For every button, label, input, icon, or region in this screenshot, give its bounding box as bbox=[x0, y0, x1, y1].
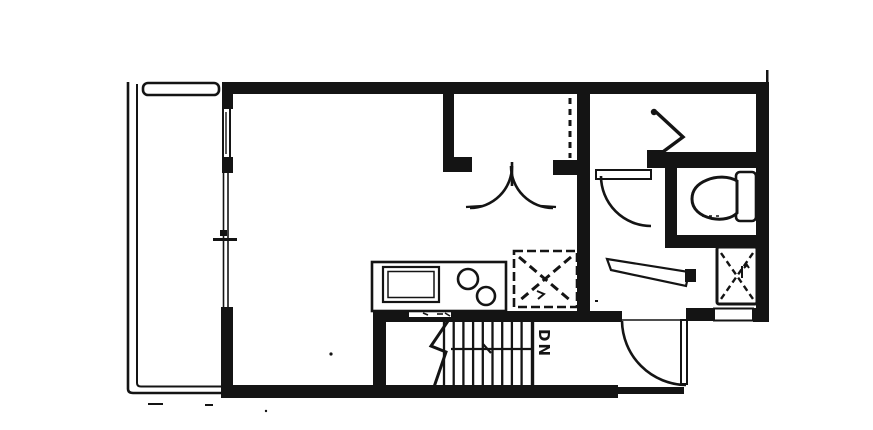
entry-door-leaf-angled bbox=[607, 259, 689, 286]
balcony-inner-rail bbox=[137, 84, 224, 387]
wall-bottom bbox=[222, 385, 618, 398]
wall-toilet-top bbox=[660, 152, 757, 168]
closet-door-right-swing-arc bbox=[511, 166, 553, 208]
washer-x-diag-2 bbox=[721, 253, 753, 299]
stair-treads bbox=[444, 321, 522, 385]
toilet-door-swing-arc bbox=[601, 176, 651, 226]
entry-door-hinge-blob bbox=[685, 269, 696, 282]
wall-hall-vertical bbox=[577, 92, 590, 318]
dishwasher-center-squiggle bbox=[537, 291, 544, 299]
upper-right-room-symbol bbox=[651, 109, 683, 157]
left-wall-window bbox=[223, 108, 230, 158]
wall-left-sill bbox=[222, 157, 233, 173]
entry-threshold-band bbox=[617, 387, 684, 394]
washer-square bbox=[717, 247, 757, 304]
slider-latch-blob bbox=[220, 230, 227, 236]
speck-dash-1 bbox=[148, 403, 163, 405]
floor-plan-drawing: DN bbox=[0, 0, 873, 430]
closet-left-wall bbox=[443, 92, 454, 158]
stairs-down-label: DN bbox=[535, 329, 553, 358]
toilet-tank bbox=[736, 172, 756, 221]
entry-door-swing-arc bbox=[622, 321, 686, 385]
wall-lower-right-a bbox=[686, 308, 714, 321]
toilet-room-door bbox=[596, 170, 651, 226]
washer-x-diag-1 bbox=[721, 253, 753, 299]
wall-right-tick bbox=[766, 70, 769, 82]
stair-break-line bbox=[431, 321, 448, 387]
closet-left-jamb bbox=[443, 157, 472, 172]
kitchen-counter bbox=[372, 262, 506, 311]
speck-3 bbox=[595, 300, 598, 302]
entry-door-leaf-open bbox=[681, 320, 687, 384]
bottom-right-window bbox=[714, 309, 753, 321]
entry-door bbox=[607, 259, 696, 394]
wall-top bbox=[222, 82, 769, 94]
toilet-bowl bbox=[692, 177, 737, 219]
balcony-outer-rail bbox=[128, 82, 225, 393]
speck-1 bbox=[329, 352, 332, 355]
wall-stairwell-left bbox=[373, 318, 386, 398]
speck-2 bbox=[265, 410, 267, 412]
closet-door-left-tip-tick bbox=[466, 206, 482, 207]
closet-double-doors bbox=[466, 162, 556, 208]
balcony bbox=[128, 82, 225, 393]
balcony-slider bbox=[213, 172, 237, 308]
balcony-top-rail-plate bbox=[143, 83, 219, 95]
toilet bbox=[692, 172, 756, 221]
wall-left-lower bbox=[221, 307, 233, 398]
floor-plan-sheet: DN bbox=[0, 0, 873, 430]
stairs: DN bbox=[431, 321, 553, 387]
closet-right-jamb bbox=[553, 160, 578, 175]
wall-left-upper bbox=[222, 83, 233, 109]
closet-door-right-tip-tick bbox=[541, 206, 556, 207]
closet bbox=[443, 92, 578, 208]
wall-lower-right-corner bbox=[753, 308, 769, 322]
toilet-door-leaf bbox=[596, 170, 651, 179]
washer-glyph-arrow bbox=[742, 265, 749, 278]
closet-door-left-swing-arc bbox=[470, 166, 512, 208]
speck-dash-2 bbox=[205, 404, 213, 406]
slider-meeting-tick bbox=[213, 238, 237, 241]
dishwasher-square bbox=[514, 251, 577, 307]
